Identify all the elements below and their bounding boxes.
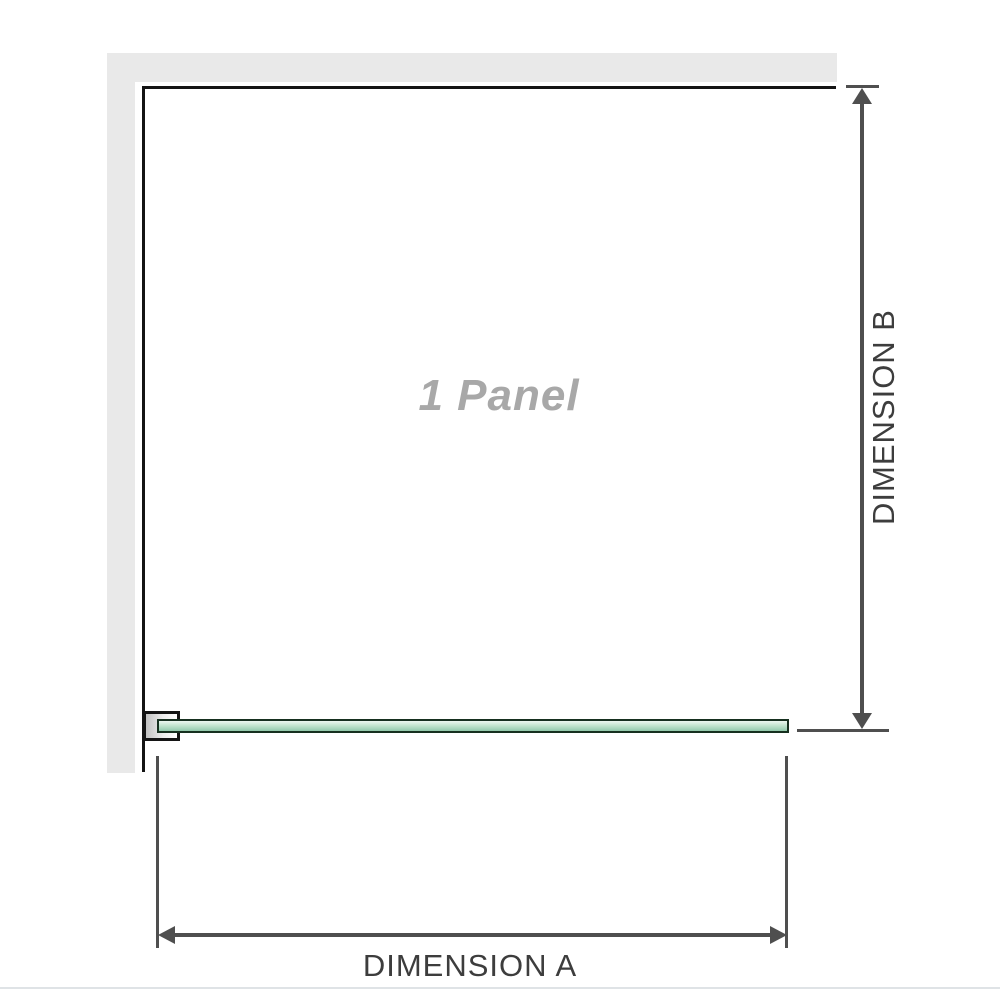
diagram-canvas: 1 Panel DIMENSION B DIMENSION A <box>0 0 1000 1000</box>
dimension-a-right-extension <box>785 756 788 948</box>
dimension-a-left-extension <box>156 756 159 948</box>
arrowhead-right-icon <box>770 926 787 944</box>
enclosure-outline-top <box>142 86 836 89</box>
enclosure-outline-left <box>142 86 145 772</box>
wall-left-segment <box>107 53 135 773</box>
dimension-b-line <box>860 96 864 714</box>
dimension-b-bottom-tick <box>797 729 889 732</box>
arrowhead-down-icon <box>852 713 872 729</box>
glass-panel-bar <box>157 719 789 733</box>
dimension-a-label: DIMENSION A <box>340 950 600 982</box>
image-bottom-edge <box>0 987 1000 989</box>
dimension-b-label: DIMENSION B <box>869 297 899 537</box>
arrowhead-left-icon <box>158 926 175 944</box>
arrowhead-up-icon <box>852 88 872 104</box>
panel-count-label: 1 Panel <box>379 372 619 420</box>
dimension-a-line <box>170 933 774 937</box>
wall-top-segment <box>107 53 837 82</box>
